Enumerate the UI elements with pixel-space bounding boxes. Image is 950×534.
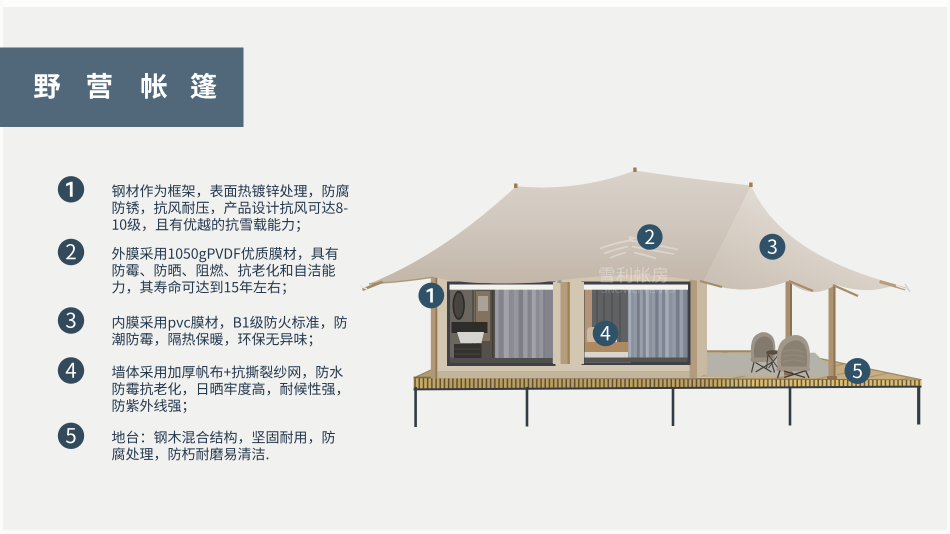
svg-text:SNOWLI TENTS: SNOWLI TENTS [601,285,676,296]
